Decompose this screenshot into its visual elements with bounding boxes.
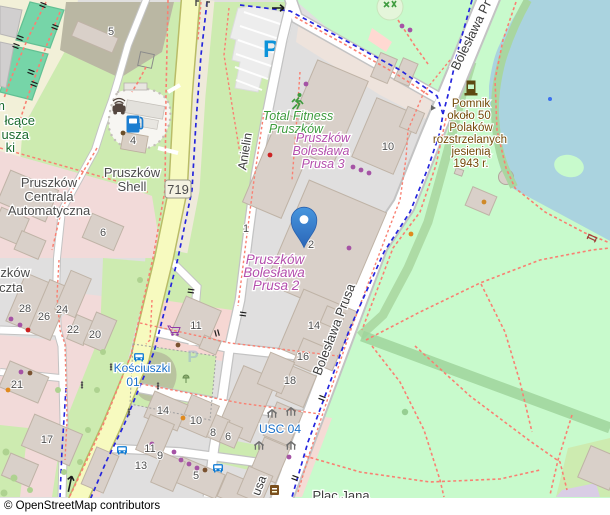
svg-text:1943 r.: 1943 r. bbox=[453, 158, 488, 170]
svg-text:11: 11 bbox=[190, 320, 201, 332]
svg-text:rozstrzelanych: rozstrzelanych bbox=[433, 134, 507, 146]
svg-text:5: 5 bbox=[108, 26, 114, 38]
svg-text:około 50: około 50 bbox=[447, 110, 490, 122]
svg-text:719: 719 bbox=[167, 182, 189, 197]
svg-text:ki: ki bbox=[6, 140, 16, 155]
svg-text:6: 6 bbox=[225, 431, 231, 443]
svg-text:26: 26 bbox=[38, 311, 50, 323]
svg-text:10: 10 bbox=[382, 141, 394, 153]
svg-text:Pruszków: Pruszków bbox=[104, 165, 161, 180]
svg-text:jesienią: jesienią bbox=[451, 146, 492, 158]
svg-text:Polaków: Polaków bbox=[449, 122, 493, 134]
svg-text:Pruszków: Pruszków bbox=[21, 175, 78, 190]
svg-text:18: 18 bbox=[284, 375, 296, 387]
svg-text:28: 28 bbox=[19, 303, 31, 315]
svg-text:Centrala: Centrala bbox=[24, 189, 74, 204]
svg-text:Prusa 3: Prusa 3 bbox=[301, 157, 344, 171]
svg-text:szków: szków bbox=[0, 265, 31, 280]
svg-text:łcące: łcące bbox=[5, 113, 35, 128]
svg-text:Automatyczna: Automatyczna bbox=[8, 203, 91, 218]
svg-text:24: 24 bbox=[56, 304, 68, 316]
svg-text:8: 8 bbox=[210, 427, 216, 439]
svg-text:Pruszków: Pruszków bbox=[296, 131, 351, 145]
svg-text:USC 04: USC 04 bbox=[259, 422, 301, 436]
svg-text:Shell: Shell bbox=[118, 179, 147, 194]
svg-text:P: P bbox=[187, 347, 198, 366]
svg-text:21: 21 bbox=[11, 379, 23, 391]
svg-text:oczta: oczta bbox=[0, 280, 24, 295]
svg-text:16: 16 bbox=[297, 351, 309, 363]
svg-text:6: 6 bbox=[100, 227, 106, 239]
svg-text:22: 22 bbox=[67, 324, 79, 336]
svg-text:10: 10 bbox=[190, 415, 202, 427]
svg-text:Pomnik: Pomnik bbox=[452, 98, 491, 110]
svg-text:01: 01 bbox=[126, 375, 140, 389]
svg-text:2: 2 bbox=[308, 239, 314, 251]
svg-text:Kościuszki: Kościuszki bbox=[114, 361, 171, 375]
svg-text:4: 4 bbox=[130, 135, 136, 147]
svg-text:17: 17 bbox=[41, 434, 53, 446]
svg-text:11: 11 bbox=[144, 443, 155, 455]
svg-text:20: 20 bbox=[89, 329, 101, 341]
svg-text:14: 14 bbox=[157, 405, 169, 417]
svg-text:5: 5 bbox=[193, 470, 199, 482]
svg-text:m: m bbox=[0, 98, 5, 113]
svg-text:Prusa 2: Prusa 2 bbox=[253, 278, 300, 293]
svg-text:1: 1 bbox=[243, 223, 249, 235]
svg-text:Bolesława: Bolesława bbox=[293, 144, 350, 158]
svg-text:14: 14 bbox=[308, 320, 320, 332]
svg-text:13: 13 bbox=[135, 460, 147, 472]
svg-text:Total Fitness: Total Fitness bbox=[263, 109, 333, 123]
svg-text:9: 9 bbox=[157, 450, 163, 462]
